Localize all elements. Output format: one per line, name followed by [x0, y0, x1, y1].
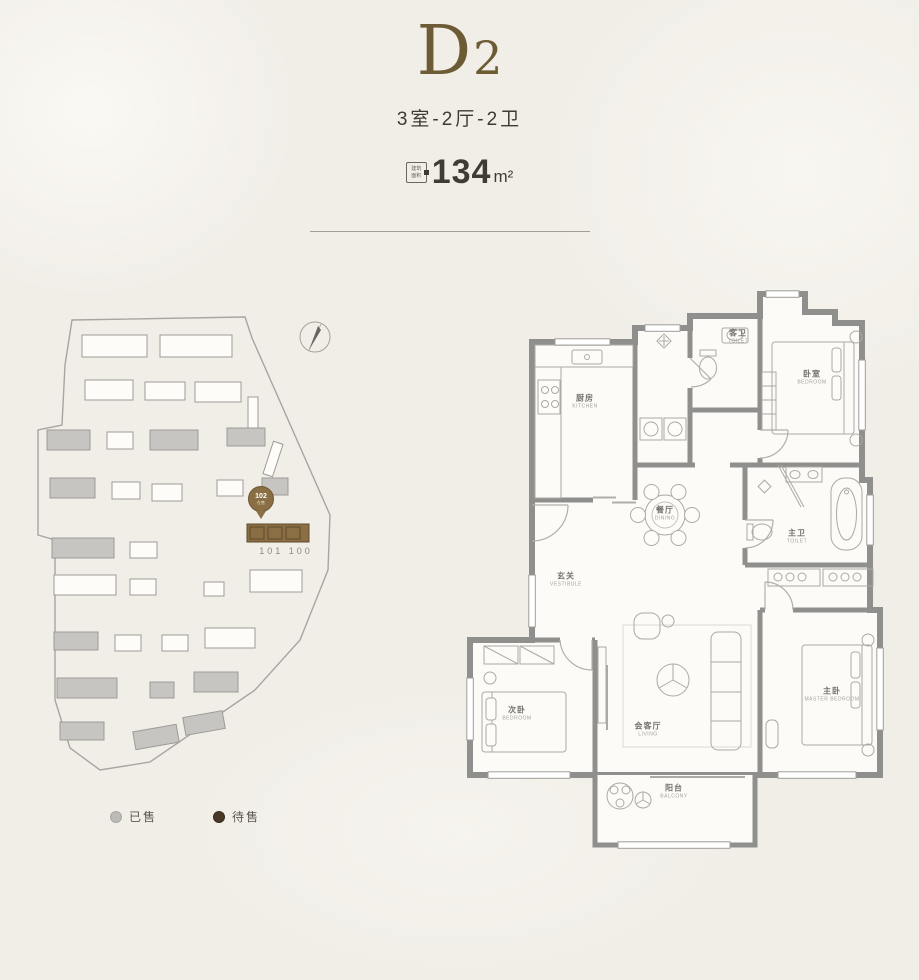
room-label-master-toilet: 主卫 TOILET [787, 529, 807, 546]
room-label-guest-toilet: 客卫 TOILET [728, 329, 748, 346]
page-title: D2 [0, 18, 919, 86]
room-label-dining: 餐厅 DINING [655, 506, 676, 523]
pin-head: 102 在售 [248, 486, 274, 512]
layout-summary: 3室-2厅-2卫 [0, 104, 919, 131]
area-unit: m² [493, 167, 513, 187]
pin-status: 在售 [257, 501, 265, 505]
room-label-second-bedroom: 次卧 BEDROOM [502, 706, 531, 723]
sold-dot-icon [110, 811, 122, 823]
compass-icon [300, 322, 330, 352]
forsale-dot-icon [213, 811, 225, 823]
pin-tail [256, 511, 266, 519]
building-footprints [47, 335, 309, 750]
building-pin: 102 在售 [248, 486, 274, 519]
legend: 已售 待售 [110, 808, 260, 825]
room-label-master-bedroom: 主卧 MASTER BEDROOM [804, 687, 859, 704]
legend-item-sold: 已售 [110, 808, 157, 825]
unit-type-letter: D [417, 12, 474, 91]
site-plan: 102 在售 101 100 [22, 302, 332, 792]
floor-plan: 厨房 KITCHEN 客卫 TOILET 卧室 BEDROOM 餐厅 DININ… [460, 280, 905, 855]
unit-type-number: 2 [473, 31, 502, 85]
area-row: 建筑 面积 134 m² [0, 153, 919, 192]
legend-item-forsale: 待售 [213, 808, 260, 825]
header-divider [310, 231, 590, 232]
header: D2 3室-2厅-2卫 建筑 面积 134 m² [0, 18, 919, 192]
floor-plan-svg [460, 280, 905, 855]
unit-numbers: 101 100 [246, 546, 326, 556]
area-badge-icon: 建筑 面积 [406, 162, 427, 183]
highlighted-building [247, 524, 309, 542]
floorplan-page: D2 3室-2厅-2卫 建筑 面积 134 m² [0, 0, 919, 860]
badge-corner-mark [424, 170, 429, 175]
room-label-kitchen: 厨房 KITCHEN [572, 394, 597, 411]
area-value: 134 [432, 153, 492, 192]
room-label-bedroom: 卧室 BEDROOM [797, 370, 826, 387]
room-label-balcony: 阳台 BALCONY [660, 784, 687, 801]
room-label-living: 会客厅 LIVING [635, 722, 662, 739]
room-label-vestibule: 玄关 VESTIBULE [550, 572, 582, 589]
